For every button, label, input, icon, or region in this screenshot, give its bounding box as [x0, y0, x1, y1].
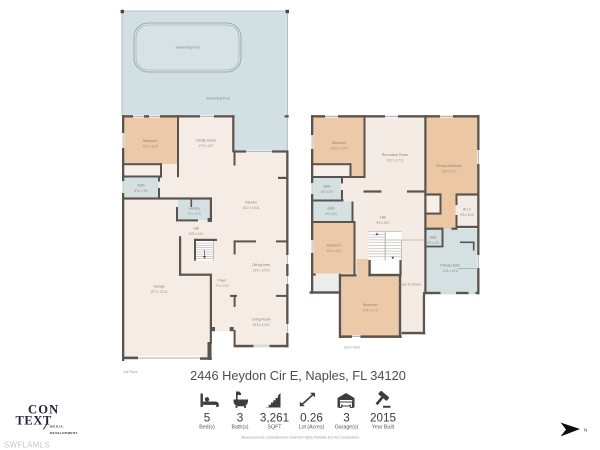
svg-text:17'9 x 14'7: 17'9 x 14'7 [198, 144, 213, 148]
svg-text:DEVELOPMENT: DEVELOPMENT [50, 431, 78, 435]
svg-text:12'10 x 11'0: 12'10 x 11'0 [331, 147, 348, 151]
svg-text:Year Built: Year Built [372, 425, 395, 431]
svg-text:Lot (Acres): Lot (Acres) [299, 425, 325, 431]
svg-text:3: 3 [343, 412, 350, 425]
svg-text:2nd Floor: 2nd Floor [344, 346, 361, 350]
svg-text:Primary Bath: Primary Bath [440, 264, 460, 268]
svg-text:Recreation Room: Recreation Room [382, 153, 409, 157]
svg-text:Foyer: Foyer [218, 279, 228, 283]
svg-text:SQFT: SQFT [268, 425, 283, 431]
svg-text:Laundry: Laundry [188, 207, 201, 211]
svg-text:Bath(s): Bath(s) [232, 425, 249, 431]
svg-text:MEDIA: MEDIA [50, 425, 64, 429]
svg-text:Living Room: Living Room [252, 318, 271, 322]
svg-text:13'6 x 10'10: 13'6 x 10'10 [253, 269, 270, 273]
svg-text:12'6 x 10'6: 12'6 x 10'6 [442, 269, 457, 273]
svg-text:14'6 x 17'0: 14'6 x 17'0 [362, 309, 377, 313]
svg-text:N: N [584, 428, 587, 433]
svg-text:Measurements Calculated Are De: Measurements Calculated Are Deemed Highl… [241, 436, 359, 440]
svg-text:Hall: Hall [193, 227, 199, 231]
svg-text:Bath: Bath [328, 207, 335, 211]
svg-text:3,261: 3,261 [260, 412, 289, 425]
svg-text:5: 5 [204, 412, 211, 425]
svg-text:Garage: Garage [153, 285, 164, 289]
svg-text:Bedroom: Bedroom [327, 244, 341, 248]
svg-text:Kitchen: Kitchen [245, 201, 256, 205]
svg-text:10'9 x 21'1: 10'9 x 21'1 [188, 232, 203, 236]
svg-text:13'2 x 17'11: 13'2 x 17'11 [387, 159, 404, 163]
svg-text:Open To Above: Open To Above [399, 283, 421, 287]
svg-text:Bath: Bath [324, 185, 331, 189]
svg-text:9'8 x 6'10: 9'8 x 6'10 [460, 213, 474, 217]
svg-text:SWFLAMLS: SWFLAMLS [4, 441, 50, 450]
svg-text:Family Room: Family Room [196, 139, 216, 143]
svg-text:W.I.C: W.I.C [463, 208, 472, 212]
svg-text:Bath: Bath [138, 184, 145, 188]
svg-text:15'6 x 11'10: 15'6 x 11'10 [253, 323, 270, 327]
svg-text:Swimming Pool: Swimming Pool [175, 46, 199, 50]
svg-text:8'0 x 5'0: 8'0 x 5'0 [321, 190, 333, 194]
svg-text:Hall: Hall [380, 216, 386, 220]
svg-text:2015: 2015 [370, 412, 397, 425]
svg-text:Bath: Bath [430, 236, 437, 240]
svg-text:9'9 x 20'7: 9'9 x 20'7 [376, 221, 390, 225]
svg-text:7'0 x 5'10: 7'0 x 5'10 [187, 212, 201, 216]
svg-text:20'7 x 21'11: 20'7 x 21'11 [151, 290, 168, 294]
svg-text:Bedroom: Bedroom [363, 303, 377, 307]
svg-text:Garage(s): Garage(s) [335, 425, 359, 431]
svg-text:0.26: 0.26 [300, 412, 323, 425]
svg-text:Bedroom: Bedroom [143, 139, 157, 143]
svg-text:Dining Area: Dining Area [252, 263, 270, 267]
svg-text:12'0 x 11'5: 12'0 x 11'5 [143, 145, 158, 149]
svg-text:16'2 x 16'11: 16'2 x 16'11 [243, 206, 260, 210]
svg-text:7'0 x 21'0: 7'0 x 21'0 [215, 284, 229, 288]
svg-text:Swimming Pool: Swimming Pool [206, 97, 230, 101]
svg-text:Bed(s): Bed(s) [199, 425, 215, 431]
svg-text:3: 3 [237, 412, 244, 425]
svg-text:Bedroom: Bedroom [332, 141, 346, 145]
svg-text:9'6 x 5'4: 9'6 x 5'4 [325, 212, 337, 216]
svg-text:1st Floor: 1st Floor [123, 370, 139, 374]
svg-text:Primary Bedroom: Primary Bedroom [436, 164, 463, 168]
svg-text:2446 Heydon Cir E, Naples, FL: 2446 Heydon Cir E, Naples, FL 34120 [190, 368, 406, 383]
svg-text:13'5 x 16'7: 13'5 x 16'7 [441, 170, 456, 174]
svg-text:8'10 x 5'1: 8'10 x 5'1 [134, 189, 148, 193]
svg-text:5'2 x 3'9: 5'2 x 3'9 [427, 241, 439, 245]
svg-text:11'6 x 13'4: 11'6 x 13'4 [327, 249, 342, 253]
